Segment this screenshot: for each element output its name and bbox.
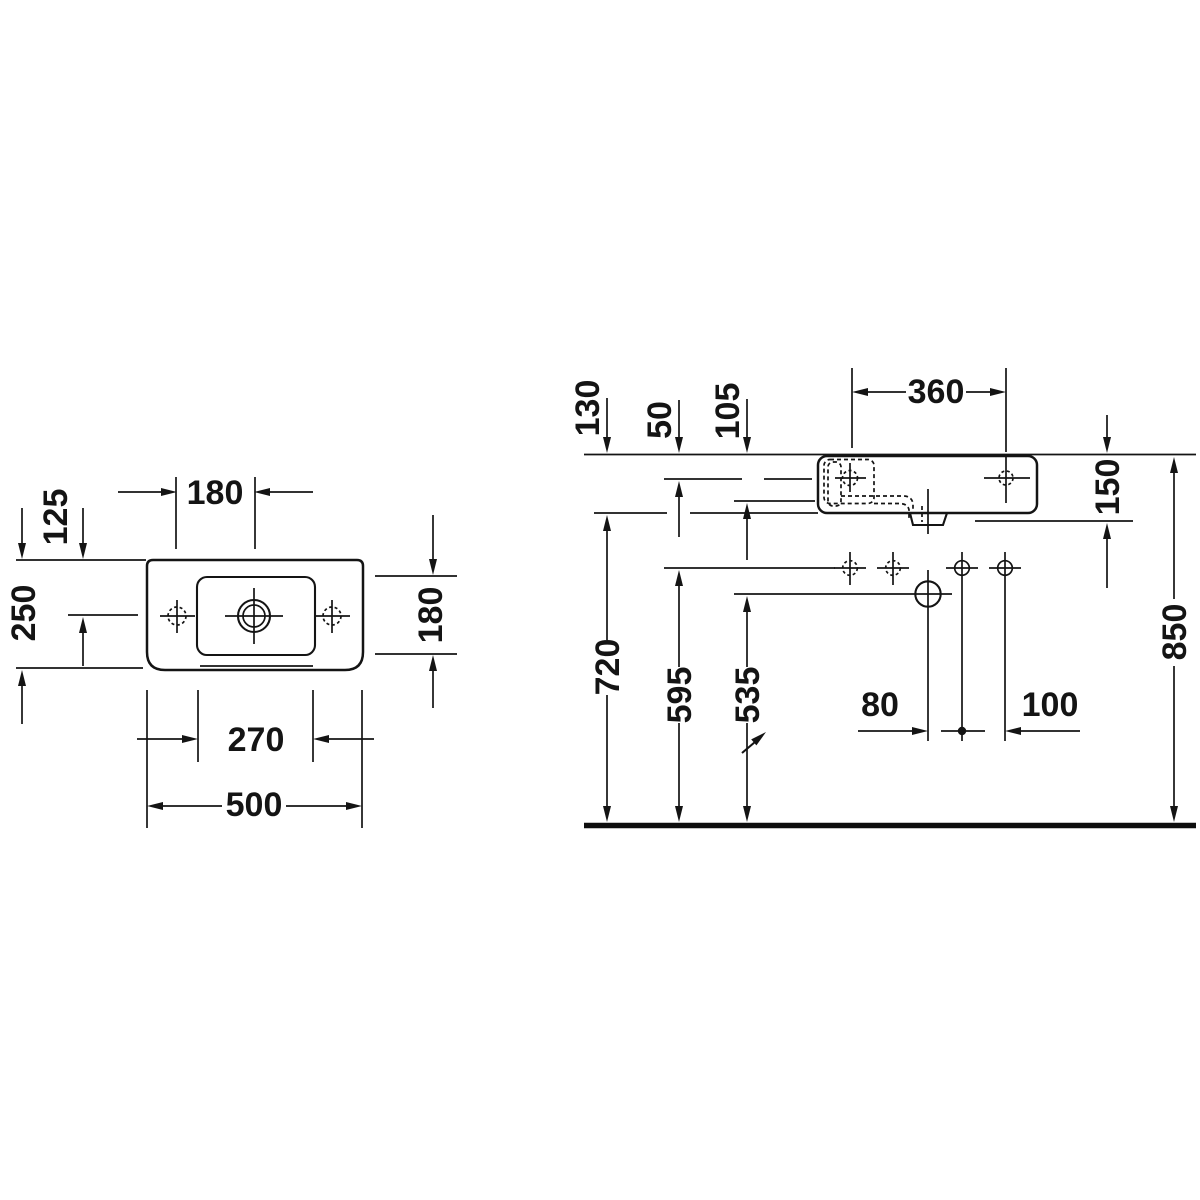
tap-hole-right-elevation xyxy=(984,455,1030,503)
arrowhead-up xyxy=(675,570,683,586)
arrowhead-up xyxy=(743,503,751,519)
arrow-to-tap-axis xyxy=(675,481,683,537)
faucet-hole xyxy=(225,588,283,644)
arrowhead-up xyxy=(429,655,437,671)
arrowhead-down xyxy=(603,806,611,822)
dim-label-535: 535 xyxy=(729,667,767,724)
arrowhead-left xyxy=(313,735,329,743)
overflow-channel-outer xyxy=(824,460,874,504)
arrowhead-up xyxy=(18,670,26,686)
elevation-dim-rim-to-bowl-bottom: 105 xyxy=(709,383,751,453)
elevation-dim-rim-height: 850 xyxy=(1156,457,1194,822)
washbasin-dimension-drawing: 180 125 250 180 xyxy=(0,0,1200,1200)
plan-dim-bowl-width: 270 xyxy=(137,721,374,759)
plan-dim-bowl-depth: 180 xyxy=(375,515,457,708)
elevation-dim-tap-spacing: 360 xyxy=(852,368,1006,452)
dim-label-180-right: 180 xyxy=(412,587,450,644)
arrow-to-bowl-bottom xyxy=(743,503,751,560)
dim-label-50: 50 xyxy=(641,401,679,439)
dim-label-105: 105 xyxy=(709,383,747,440)
arrowhead-down xyxy=(603,437,611,453)
dim-label-595: 595 xyxy=(661,667,699,724)
arrowhead-up xyxy=(603,515,611,531)
dim-label-720: 720 xyxy=(589,639,627,696)
plan-view: 180 125 250 180 xyxy=(5,474,457,828)
elevation-view: 360 130 50 105 xyxy=(569,368,1196,826)
arrowhead-down xyxy=(675,806,683,822)
arrowhead-up xyxy=(743,596,751,612)
overflow-channel-inner xyxy=(828,462,841,506)
elevation-dim-rim-to-tap-axis: 50 xyxy=(641,400,683,453)
side-hole-right xyxy=(315,600,350,633)
dim-label-270: 270 xyxy=(228,721,285,759)
arrowhead-right xyxy=(161,488,177,496)
dim-label-850: 850 xyxy=(1156,604,1194,661)
arrowhead-up xyxy=(79,617,87,633)
elevation-dim-fixing-hole-height: 595 xyxy=(661,570,699,822)
elevation-dim-rim-to-outlet: 150 xyxy=(1089,415,1127,588)
dim-label-360: 360 xyxy=(908,373,965,411)
technical-drawing-page: 180 125 250 180 xyxy=(0,0,1200,1200)
arrowhead-down xyxy=(1170,806,1178,822)
arrowhead-up xyxy=(675,481,683,497)
dim-label-500: 500 xyxy=(226,786,283,824)
arrowhead-down xyxy=(79,543,87,559)
dim-label-80: 80 xyxy=(861,686,899,724)
elevation-dim-drain-offset: 80 xyxy=(858,686,928,735)
dim-label-100: 100 xyxy=(1022,686,1079,724)
dim-label-150: 150 xyxy=(1089,459,1127,516)
northeast-arrow-icon xyxy=(742,732,766,753)
arrowhead-left xyxy=(147,802,163,810)
elevation-dim-drain-height: 535 xyxy=(729,596,767,822)
arrowhead-right xyxy=(990,388,1006,396)
arrowhead-right xyxy=(182,735,198,743)
side-hole-left xyxy=(160,600,195,633)
dim-label-250: 250 xyxy=(5,585,43,642)
arrowhead-left xyxy=(254,488,270,496)
tap-hole-left-elevation xyxy=(835,463,866,492)
arrow-shaft xyxy=(742,742,755,753)
elevation-dim-rim-to-body-bottom: 130 xyxy=(569,380,611,453)
arrowhead-up xyxy=(1103,523,1111,539)
arrowhead-down xyxy=(18,543,26,559)
arrowhead-left xyxy=(1005,727,1021,735)
arrowhead-right xyxy=(346,802,362,810)
arrowhead-down xyxy=(743,806,751,822)
dim-label-180-top: 180 xyxy=(187,474,244,512)
arrowhead-down xyxy=(429,559,437,575)
arrowhead-up xyxy=(1170,457,1178,473)
plan-dim-hole-spacing: 180 xyxy=(118,474,313,549)
plan-dim-front-to-holes: 125 xyxy=(37,489,87,666)
dim-label-130: 130 xyxy=(569,380,607,437)
drain-hole xyxy=(915,489,940,741)
plan-dim-total-width: 500 xyxy=(147,786,362,824)
dim-label-125: 125 xyxy=(37,489,75,546)
elevation-dim-body-bottom-height: 720 xyxy=(589,515,627,822)
arrowhead-right xyxy=(912,727,928,735)
arrowhead-down xyxy=(1103,437,1111,453)
arrowhead-left xyxy=(852,388,868,396)
dim-dot xyxy=(958,727,966,735)
